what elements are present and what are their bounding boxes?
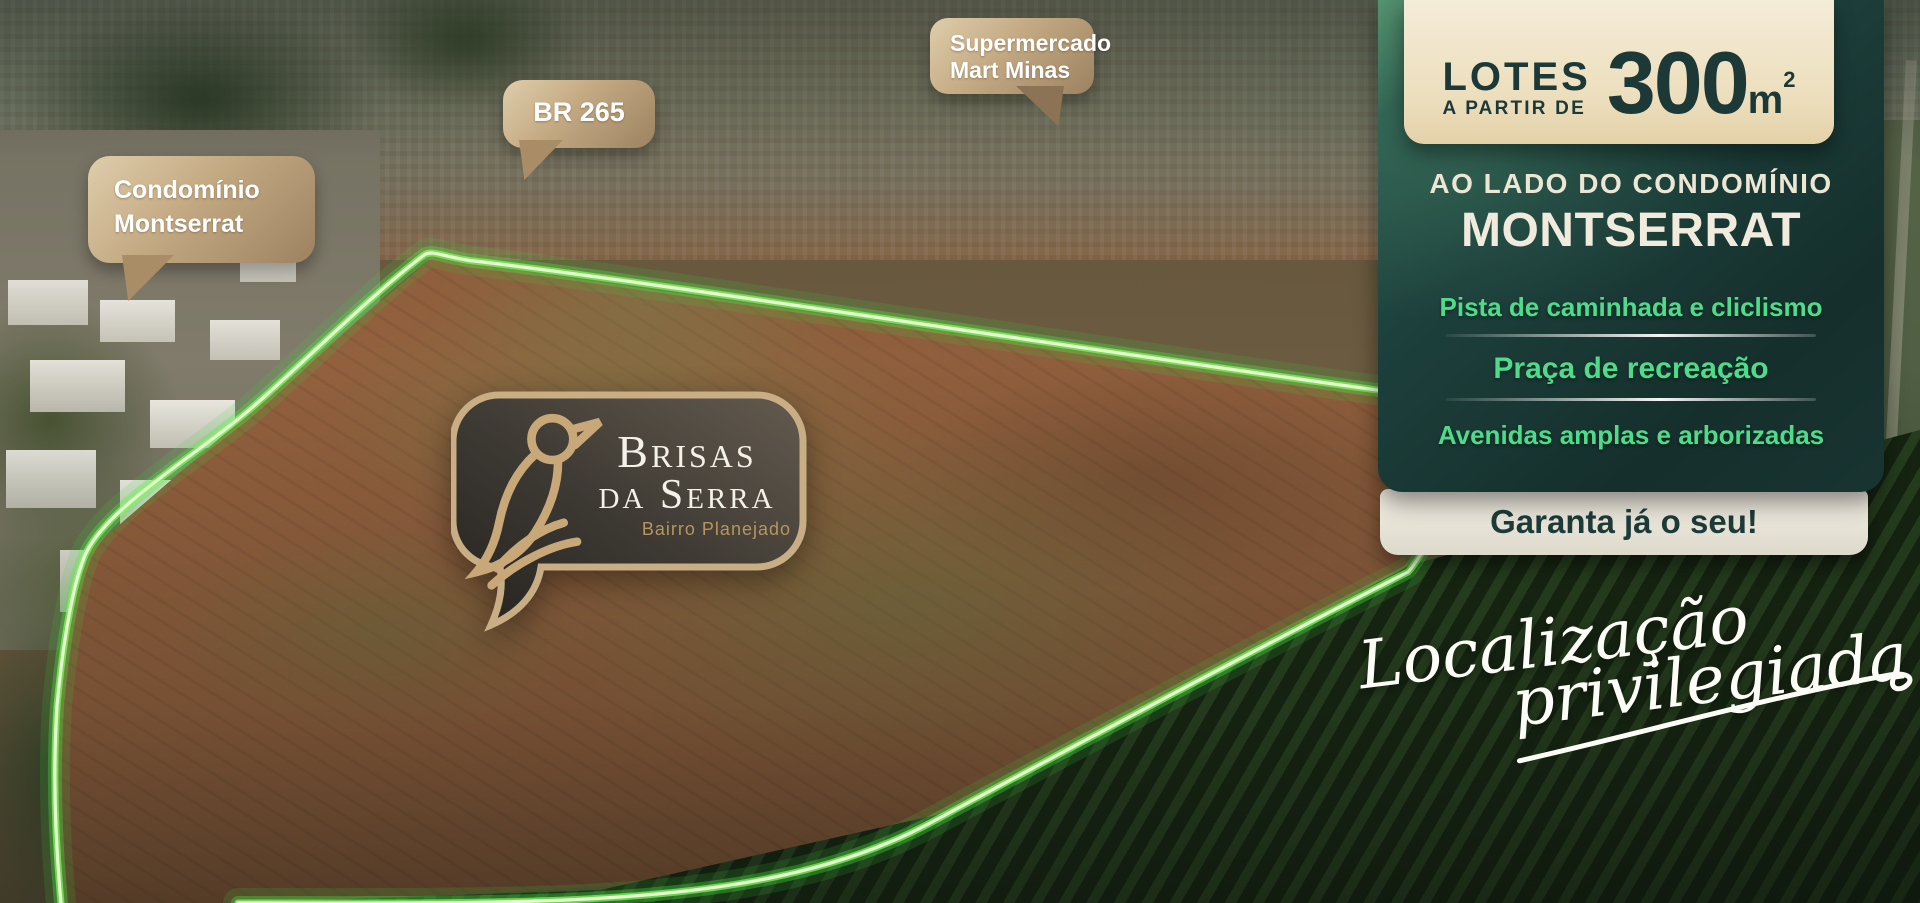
map-label-line: BR 265 <box>503 97 655 128</box>
info-panel: LOTES A PARTIR DE 300m2 AO LADO DO CONDO… <box>1378 0 1884 492</box>
offer-left-block: LOTES A PARTIR DE <box>1443 59 1591 120</box>
offer-value: 300 <box>1607 33 1748 132</box>
map-label-line: Mart Minas <box>950 57 1094 84</box>
map-label-condominio-montserrat: Condomínio Montserrat <box>88 156 315 263</box>
offer-unit-letter: m <box>1748 78 1784 122</box>
feature-item: Praça de recreação <box>1378 352 1884 386</box>
map-label-line: Condomínio <box>114 173 315 207</box>
brand-tagline: Bairro Planejado <box>579 519 795 540</box>
brand-name-line1: Brisas <box>579 427 795 477</box>
offer-unit-exponent: 2 <box>1783 67 1795 92</box>
brand-logo-bubble: Brisas da Serra Bairro Planejado <box>451 391 807 635</box>
feature-item: Pista de caminhada e cliclismo <box>1378 292 1884 323</box>
offer-title: LOTES <box>1443 59 1591 95</box>
offer-card: LOTES A PARTIR DE 300m2 <box>1404 0 1834 144</box>
boundary-bottom-line <box>238 548 1425 903</box>
brand-wordmark: Brisas da Serra Bairro Planejado <box>579 427 795 540</box>
map-label-supermercado-mart-minas: Supermercado Mart Minas <box>930 18 1094 94</box>
map-label-line: Montserrat <box>114 207 315 241</box>
hero-scene: Condomínio Montserrat BR 265 Supermercad… <box>0 0 1920 903</box>
offer-subtitle: A PARTIR DE <box>1443 98 1591 120</box>
feature-divider <box>1446 398 1816 401</box>
panel-highlight: MONTSERRAT <box>1378 203 1884 258</box>
offer-value-block: 300m2 <box>1607 49 1796 120</box>
brand-name-line2: da Serra <box>579 473 795 517</box>
feature-item: Avenidas amplas e arborizadas <box>1378 420 1884 451</box>
cta-button[interactable]: Garanta já o seu! <box>1380 489 1868 555</box>
feature-divider <box>1446 334 1816 337</box>
panel-heading: AO LADO DO CONDOMÍNIO <box>1378 168 1884 200</box>
offer-unit: m2 <box>1748 78 1796 122</box>
map-label-br-265: BR 265 <box>503 80 655 148</box>
map-label-line: Supermercado <box>950 30 1094 57</box>
